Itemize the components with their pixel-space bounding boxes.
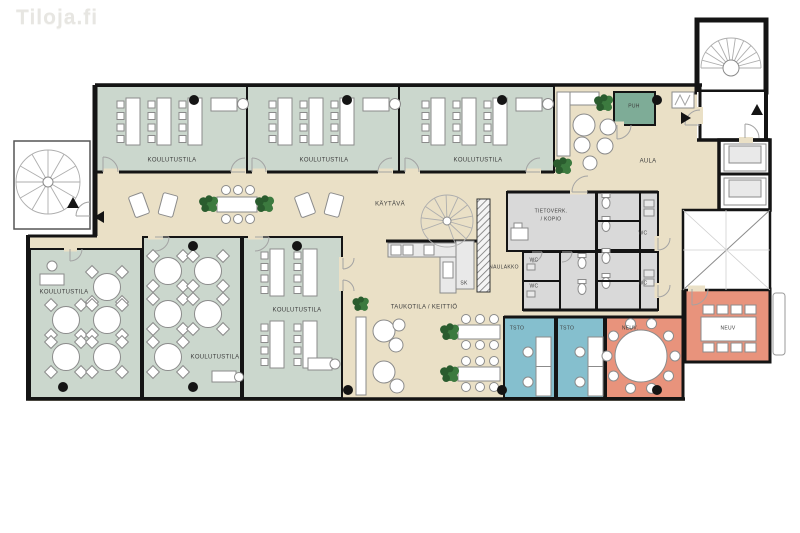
- label-kaytava: KÄYTÄVÄ: [375, 202, 405, 209]
- watermark: Tiloja.fi: [16, 6, 98, 30]
- label-koulutustila-bottom-1: KOULUTUSTILA: [40, 290, 89, 297]
- label-koulutustila-top-3: KOULUTUSTILA: [454, 158, 503, 165]
- floorplan-page: Tiloja.fi KOULUTUSTILA KOULUTUSTILA KOUL…: [0, 0, 800, 533]
- label-aula: AULA: [640, 159, 657, 166]
- label-koulutustila-top-2: KOULUTUSTILA: [300, 158, 349, 165]
- label-neuv-1: NEUV.: [622, 326, 638, 332]
- label-kopio: / KOPIO: [541, 217, 562, 223]
- label-sk: SK: [460, 281, 467, 287]
- label-tsto-1: TSTO: [510, 326, 524, 332]
- label-wc-3: WC: [639, 231, 648, 237]
- label-neuv-table: NEUV: [720, 326, 735, 332]
- label-koulutustila-bottom-2: KOULUTUSTILA: [191, 355, 240, 362]
- room-labels: Tiloja.fi KOULUTUSTILA KOULUTUSTILA KOUL…: [0, 0, 800, 533]
- label-taukotila-keittio: TAUKOTILA / KEITTIÖ: [391, 305, 458, 312]
- label-wc-4: WC: [639, 281, 648, 287]
- label-naulakko: NAULAKKO: [489, 265, 519, 271]
- label-puh: PUH: [628, 104, 639, 110]
- label-tsto-2: TSTO: [560, 326, 574, 332]
- label-wc-1: WC: [530, 258, 539, 264]
- label-wc-2: WC: [530, 284, 539, 290]
- label-tietoverk: TIETOVERK.: [535, 209, 568, 215]
- label-koulutustila-bottom-3: KOULUTUSTILA: [273, 308, 322, 315]
- label-koulutustila-top-1: KOULUTUSTILA: [148, 158, 197, 165]
